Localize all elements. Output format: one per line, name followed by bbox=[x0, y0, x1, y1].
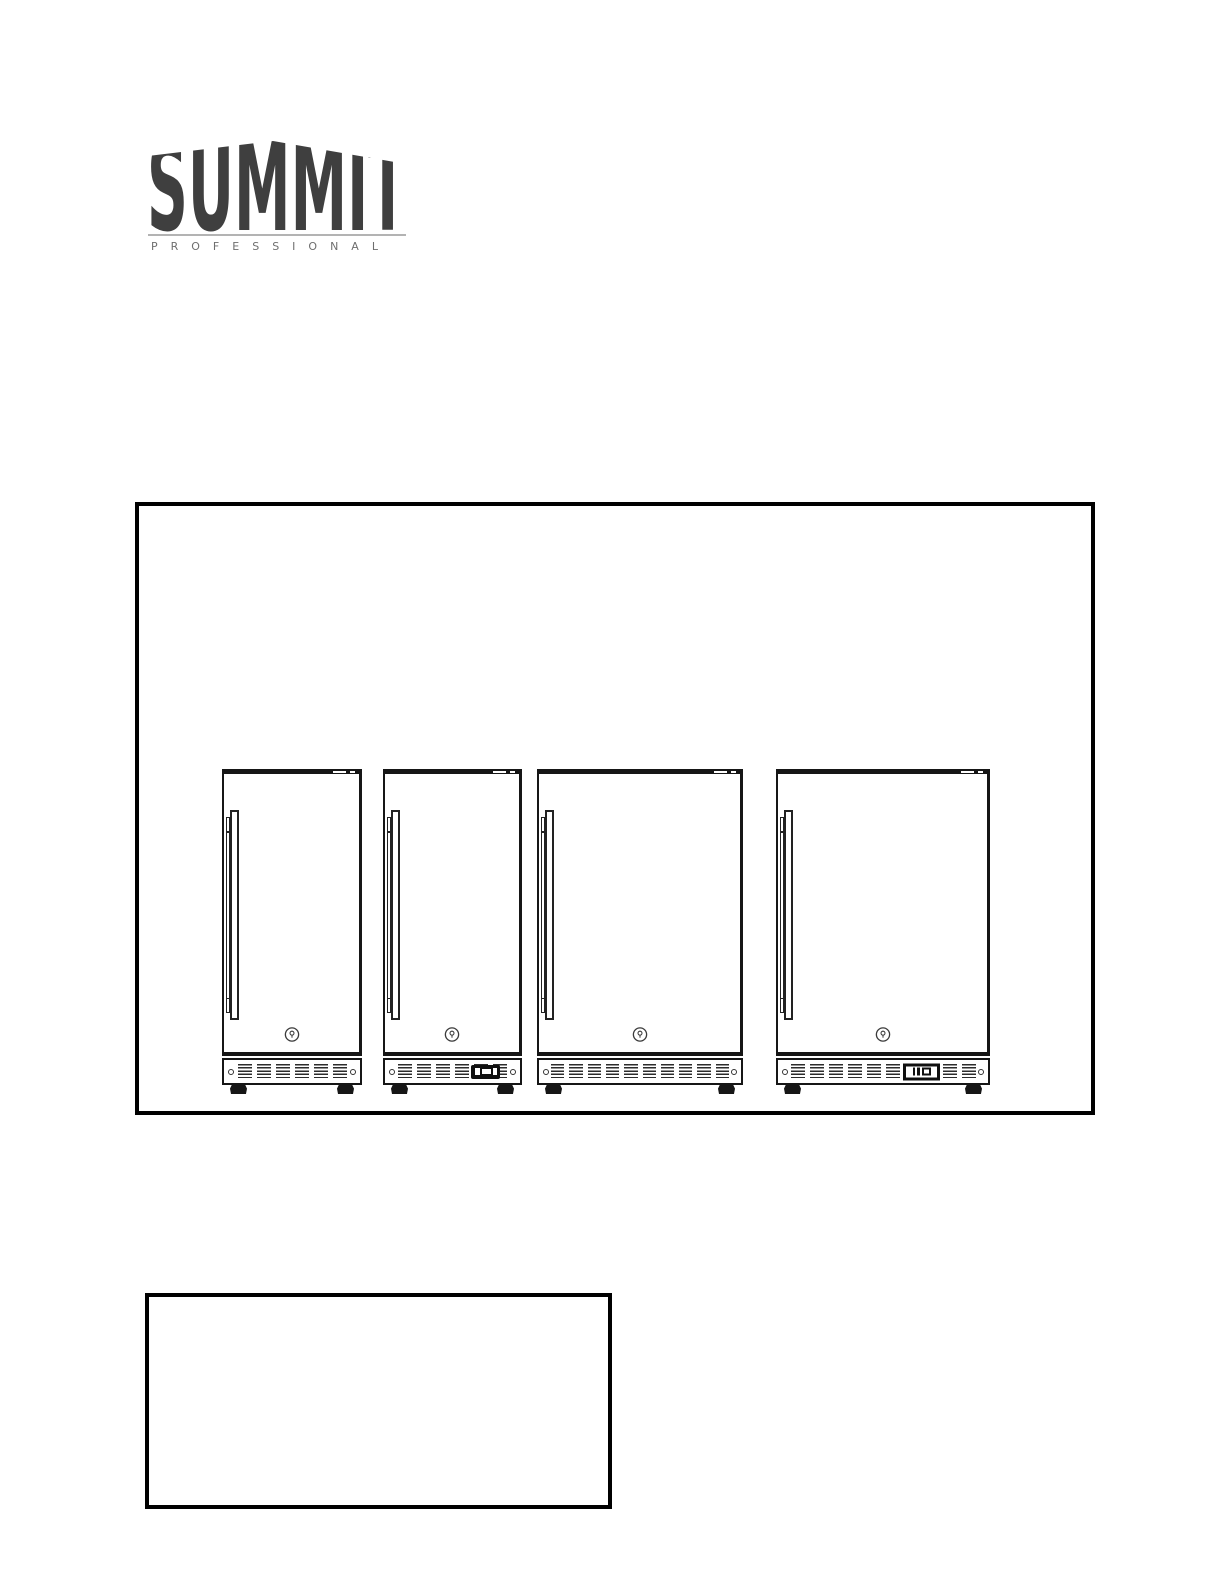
vent-slats bbox=[606, 1064, 619, 1079]
display-segment bbox=[913, 1068, 915, 1076]
vent-slats bbox=[679, 1064, 692, 1079]
vent-slat-row bbox=[790, 1060, 976, 1083]
vent-slats bbox=[697, 1064, 710, 1079]
display-segment bbox=[917, 1068, 920, 1076]
screw-icon bbox=[228, 1069, 234, 1075]
fridge-foot bbox=[391, 1085, 408, 1094]
temperature-display bbox=[471, 1065, 500, 1079]
product-illustration-box bbox=[135, 502, 1095, 1115]
vent-slats bbox=[276, 1064, 290, 1079]
empty-note-box bbox=[145, 1293, 612, 1509]
fridge-foot bbox=[337, 1085, 354, 1094]
vent-slats bbox=[436, 1064, 450, 1079]
door-label-mark bbox=[961, 771, 974, 773]
vent-grille bbox=[776, 1058, 990, 1085]
display-segment bbox=[482, 1069, 491, 1074]
screw-icon bbox=[782, 1069, 788, 1075]
vent-grille bbox=[537, 1058, 743, 1085]
vent-slats bbox=[886, 1064, 900, 1079]
vent-slats bbox=[588, 1064, 601, 1079]
vent-slats bbox=[829, 1064, 843, 1079]
screw-icon bbox=[510, 1069, 516, 1075]
vent-slat-row bbox=[551, 1060, 729, 1083]
vent-grille bbox=[383, 1058, 522, 1085]
screw-icon bbox=[543, 1069, 549, 1075]
door-label-mark bbox=[510, 771, 515, 773]
document-page: SUMMIT PROFESSIONAL bbox=[0, 0, 1224, 1584]
lock-icon bbox=[874, 1026, 891, 1043]
handle-bar bbox=[545, 810, 554, 1020]
door-top-trim bbox=[383, 769, 522, 774]
vent-slats bbox=[551, 1064, 564, 1079]
door-top-trim bbox=[776, 769, 990, 774]
brand-logo: SUMMIT PROFESSIONAL bbox=[148, 140, 406, 253]
fridge-foot bbox=[230, 1085, 247, 1094]
handle-bar bbox=[230, 810, 239, 1020]
vent-slats bbox=[810, 1064, 824, 1079]
vent-slats bbox=[867, 1064, 881, 1079]
door-handle bbox=[780, 810, 794, 1020]
handle-bar bbox=[391, 810, 400, 1020]
door-handle bbox=[387, 810, 401, 1020]
vent-slats bbox=[661, 1064, 674, 1079]
door-label-mark bbox=[731, 771, 736, 773]
vent-slats bbox=[417, 1064, 431, 1079]
vent-slats bbox=[643, 1064, 656, 1079]
vent-slats bbox=[314, 1064, 328, 1079]
vent-grille bbox=[222, 1058, 362, 1085]
fridge-door bbox=[776, 769, 990, 1056]
compact-refrigerator-plain bbox=[222, 769, 362, 1094]
fridge-foot bbox=[718, 1085, 735, 1094]
wide-refrigerator-with-display bbox=[776, 769, 990, 1094]
fridge-door bbox=[537, 769, 743, 1056]
vent-slats bbox=[295, 1064, 309, 1079]
display-segment bbox=[475, 1068, 480, 1075]
screw-icon bbox=[978, 1069, 984, 1075]
display-segment bbox=[922, 1068, 931, 1076]
logo-divider bbox=[148, 234, 406, 236]
logo-subtitle: PROFESSIONAL bbox=[148, 240, 406, 253]
vent-slats bbox=[943, 1064, 957, 1079]
vent-slats bbox=[716, 1064, 729, 1079]
vent-slats bbox=[398, 1064, 412, 1079]
compact-refrigerator-with-display bbox=[383, 769, 522, 1094]
door-top-trim bbox=[222, 769, 362, 774]
fridge-foot bbox=[545, 1085, 562, 1094]
fridge-foot bbox=[965, 1085, 982, 1094]
logo-brand-text: SUMMIT bbox=[148, 140, 406, 232]
vent-slats bbox=[257, 1064, 271, 1079]
door-label-mark bbox=[350, 771, 355, 773]
fridge-foot bbox=[784, 1085, 801, 1094]
fridge-door bbox=[383, 769, 522, 1056]
screw-icon bbox=[389, 1069, 395, 1075]
screw-icon bbox=[350, 1069, 356, 1075]
handle-bar bbox=[784, 810, 793, 1020]
door-handle bbox=[541, 810, 555, 1020]
vent-slats bbox=[624, 1064, 637, 1079]
vent-slats bbox=[569, 1064, 582, 1079]
lock-icon bbox=[631, 1026, 648, 1043]
screw-icon bbox=[731, 1069, 737, 1075]
vent-slats bbox=[238, 1064, 252, 1079]
door-top-trim bbox=[537, 769, 743, 774]
temperature-display bbox=[903, 1063, 940, 1080]
door-handle bbox=[226, 810, 240, 1020]
fridge-foot bbox=[497, 1085, 514, 1094]
vent-slats bbox=[791, 1064, 805, 1079]
vent-slats bbox=[455, 1064, 469, 1079]
vent-slats bbox=[333, 1064, 347, 1079]
fridge-door bbox=[222, 769, 362, 1056]
display-segment bbox=[493, 1068, 497, 1075]
summit-wordmark: SUMMIT bbox=[148, 140, 406, 232]
wide-refrigerator-plain bbox=[537, 769, 743, 1094]
lock-icon bbox=[283, 1026, 300, 1043]
vent-slats bbox=[962, 1064, 976, 1079]
door-label-mark bbox=[333, 771, 346, 773]
vent-slats bbox=[848, 1064, 862, 1079]
door-label-mark bbox=[493, 771, 506, 773]
vent-slat-row bbox=[236, 1060, 348, 1083]
lock-icon bbox=[444, 1026, 461, 1043]
door-label-mark bbox=[714, 771, 727, 773]
door-label-mark bbox=[978, 771, 983, 773]
